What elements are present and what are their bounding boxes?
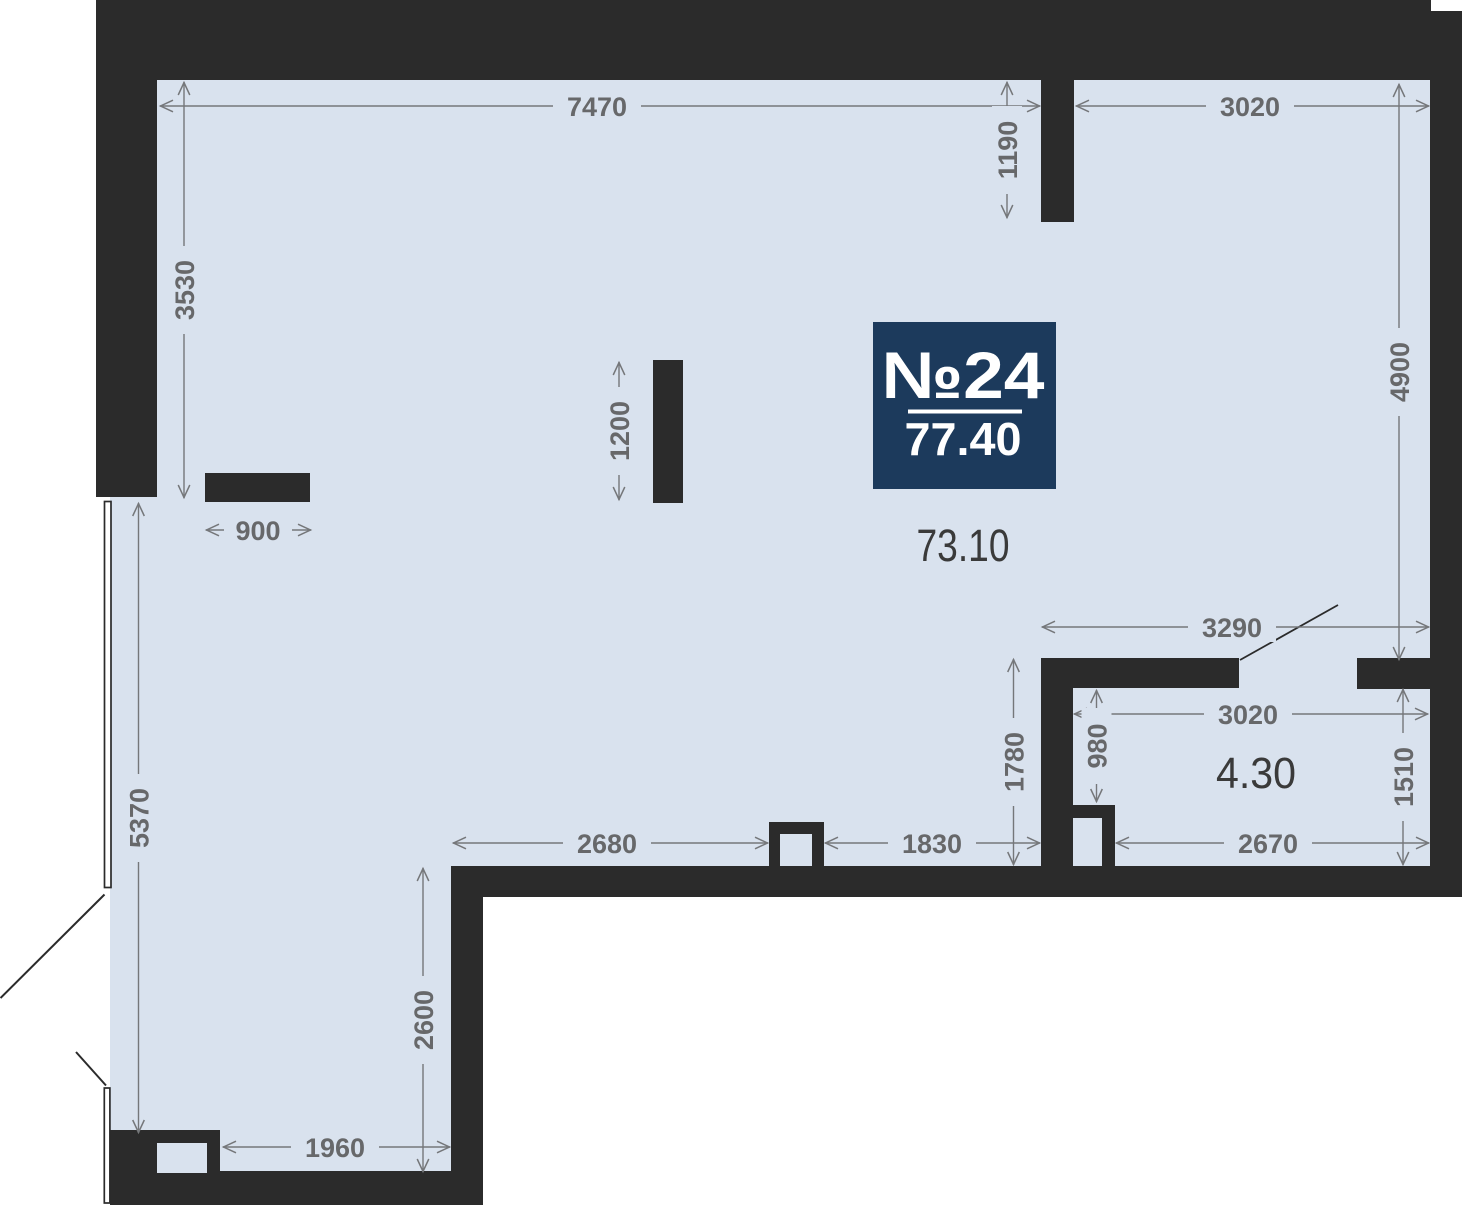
svg-text:980: 980 [1083, 723, 1113, 768]
svg-text:7470: 7470 [567, 92, 627, 122]
svg-text:3530: 3530 [170, 260, 200, 320]
svg-text:2600: 2600 [409, 990, 439, 1050]
svg-text:5370: 5370 [125, 788, 155, 848]
svg-text:4900: 4900 [1385, 342, 1415, 402]
svg-text:2680: 2680 [577, 829, 637, 859]
svg-text:3290: 3290 [1202, 613, 1262, 643]
svg-text:1830: 1830 [902, 829, 962, 859]
svg-text:73.10: 73.10 [917, 520, 1010, 571]
svg-text:1200: 1200 [605, 401, 635, 461]
svg-text:№24: №24 [882, 338, 1045, 412]
svg-text:2670: 2670 [1238, 829, 1298, 859]
svg-text:77.40: 77.40 [905, 413, 1022, 465]
svg-text:3020: 3020 [1220, 92, 1280, 122]
svg-text:1960: 1960 [305, 1133, 365, 1163]
svg-text:1510: 1510 [1389, 747, 1419, 807]
svg-text:3020: 3020 [1218, 700, 1278, 730]
svg-text:900: 900 [235, 516, 280, 546]
svg-text:4.30: 4.30 [1216, 749, 1296, 798]
svg-text:1190: 1190 [993, 121, 1023, 180]
svg-text:1780: 1780 [1000, 732, 1030, 792]
